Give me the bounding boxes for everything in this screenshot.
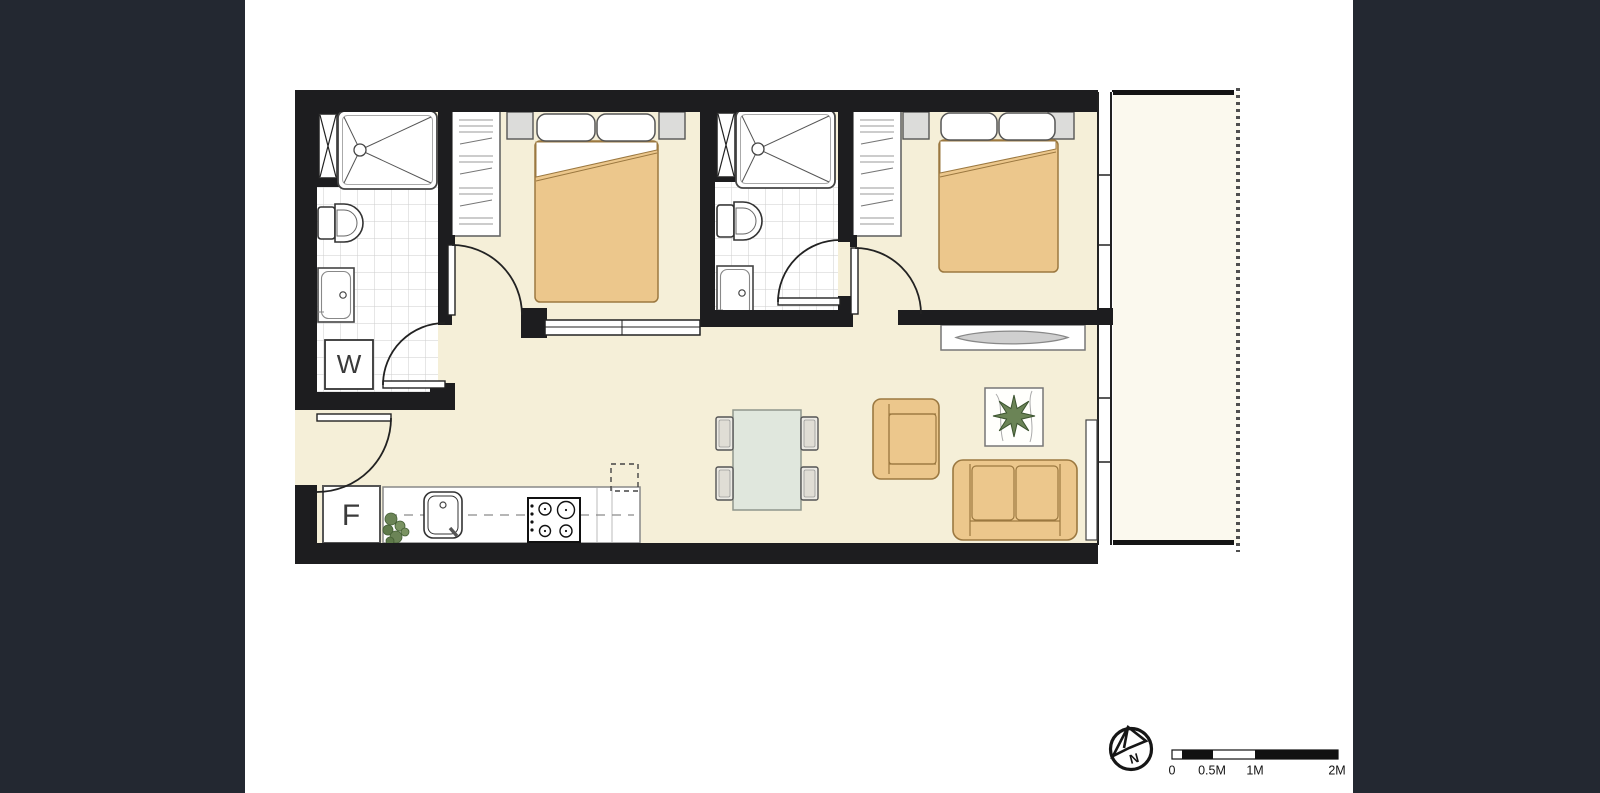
- balcony-top-edge: [1112, 90, 1234, 95]
- fridge-label: F: [342, 499, 360, 532]
- dining-chair: [716, 417, 733, 450]
- bedside-table: [507, 112, 533, 139]
- wall-bathroom2-bottom: [700, 310, 853, 327]
- wall-left-upper: [295, 90, 317, 410]
- pillow: [941, 113, 997, 140]
- scale-label-2m: 2M: [1328, 764, 1345, 778]
- vanity-1: [318, 268, 354, 322]
- wall-wardrobe2-nib: [850, 235, 857, 247]
- wall-bottom: [295, 543, 1098, 564]
- bedside-table: [903, 112, 929, 139]
- kitchen-sink: [424, 492, 462, 538]
- duct-icon: [717, 113, 735, 177]
- balcony-floor: [1112, 92, 1240, 544]
- coffee-table: [985, 388, 1043, 446]
- wall-bedroom2-bottom: [898, 310, 1098, 325]
- tv-cabinet: [941, 325, 1085, 350]
- toilet-2: [717, 202, 762, 240]
- left-letterbox: [0, 0, 245, 793]
- sliding-door-panel: [1086, 420, 1097, 540]
- entry-threshold: [295, 410, 317, 485]
- wardrobe-1: [452, 110, 500, 236]
- balcony-bottom-edge: [1112, 540, 1234, 545]
- scale-label-1m: 1M: [1246, 764, 1263, 778]
- dining-chair: [801, 417, 818, 450]
- floor-plan-svg: W F: [0, 0, 1600, 793]
- bedroom1-window: [541, 317, 700, 337]
- right-letterbox: [1353, 0, 1600, 793]
- pillow: [597, 114, 655, 141]
- scale-bar-segment: [1255, 750, 1338, 759]
- cooktop: [528, 498, 580, 542]
- plant-icon: [993, 395, 1035, 437]
- dining-chair: [716, 467, 733, 500]
- dining-table: [733, 410, 801, 510]
- armchair: [873, 399, 939, 479]
- shower-1: [338, 111, 437, 189]
- duct-icon: [319, 114, 337, 178]
- scale-bar-segment: [1182, 750, 1213, 759]
- glazing-wall-junction: [1097, 308, 1113, 325]
- sofa: [953, 460, 1077, 540]
- bedside-table: [659, 112, 685, 139]
- wardrobe-2: [853, 110, 901, 236]
- wall-bathroom2-right: [838, 110, 853, 242]
- scale-label-05m: 0.5M: [1198, 764, 1226, 778]
- pillow: [537, 114, 595, 141]
- scale-label-0: 0: [1169, 764, 1176, 778]
- shower-2: [736, 110, 835, 188]
- wall-left-lower: [295, 485, 317, 564]
- floorplan-page: W F: [0, 0, 1600, 793]
- washer-label: W: [337, 349, 362, 379]
- toilet-1: [318, 204, 363, 242]
- dining-chair: [801, 467, 818, 500]
- wall-bathroom2-left: [700, 110, 715, 327]
- pillow: [999, 113, 1055, 140]
- wall-top: [295, 90, 1098, 112]
- balcony: [1112, 88, 1240, 552]
